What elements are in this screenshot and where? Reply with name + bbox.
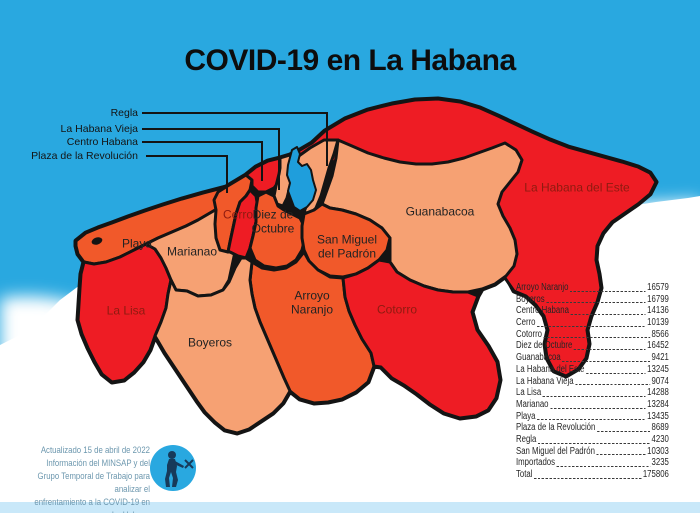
- map-label-la-lisa: La Lisa: [107, 304, 146, 318]
- map-label-arroyo-naranjo: Arroyo Naranjo: [291, 290, 333, 317]
- infographic-canvas: COVID-19 en La Habana Regla La Habana Vi…: [0, 0, 700, 513]
- map-label-guanabacoa: Guanabacoa: [406, 205, 475, 219]
- map-label-playa: Playa: [122, 237, 152, 251]
- stat-row-10: Marianao13284: [516, 399, 669, 411]
- map-label-habana-del-este: La Habana del Este: [524, 181, 629, 195]
- stat-row-12: Plaza de la Revolución8689: [516, 422, 669, 434]
- callout-label-plaza: Plaza de la Revolución: [0, 150, 138, 162]
- callout-label-regla: Regla: [0, 107, 138, 119]
- stat-row-0: Arroyo Naranjo16579: [516, 282, 669, 294]
- stat-row-13: Regla4230: [516, 434, 669, 446]
- map-label-boyeros: Boyeros: [188, 336, 232, 350]
- stat-row-16: Total175806: [516, 469, 669, 481]
- stat-row-6: Guanabacoa9421: [516, 352, 669, 364]
- stat-row-4: Cotorro8566: [516, 329, 669, 341]
- map-label-cerro: Cerro: [223, 208, 253, 222]
- stat-row-14: San Miguel del Padrón10303: [516, 446, 669, 458]
- stat-row-5: Diez de Octubre16452: [516, 340, 669, 352]
- stat-row-11: Playa13435: [516, 411, 669, 423]
- stat-row-8: La Habana Vieja9074: [516, 376, 669, 388]
- giraldilla-logo-icon: [147, 442, 201, 496]
- callout-label-habana-vieja: La Habana Vieja: [0, 123, 138, 135]
- map-label-san-miguel: San Miguel del Padrón: [317, 234, 377, 261]
- map-label-marianao: Marianao: [167, 245, 217, 259]
- stat-row-2: Centro Habana14136: [516, 305, 669, 317]
- map-label-diez-de-octubre: Diez de Octubre: [252, 209, 295, 236]
- callout-label-centro-habana: Centro Habana: [0, 136, 138, 148]
- stat-row-3: Cerro10139: [516, 317, 669, 329]
- stat-row-7: La Habana del Este13245: [516, 364, 669, 376]
- stat-row-15: Importados3235: [516, 457, 669, 469]
- cases-stats-list: Arroyo Naranjo16579Boyeros16799Centro Ha…: [516, 282, 669, 481]
- stat-row-9: La Lisa14288: [516, 387, 669, 399]
- stat-row-1: Boyeros16799: [516, 294, 669, 306]
- credits-text: Actualizado 15 de abril de 2022 Informac…: [27, 444, 150, 513]
- map-label-cotorro: Cotorro: [377, 303, 417, 317]
- page-title: COVID-19 en La Habana: [0, 44, 700, 78]
